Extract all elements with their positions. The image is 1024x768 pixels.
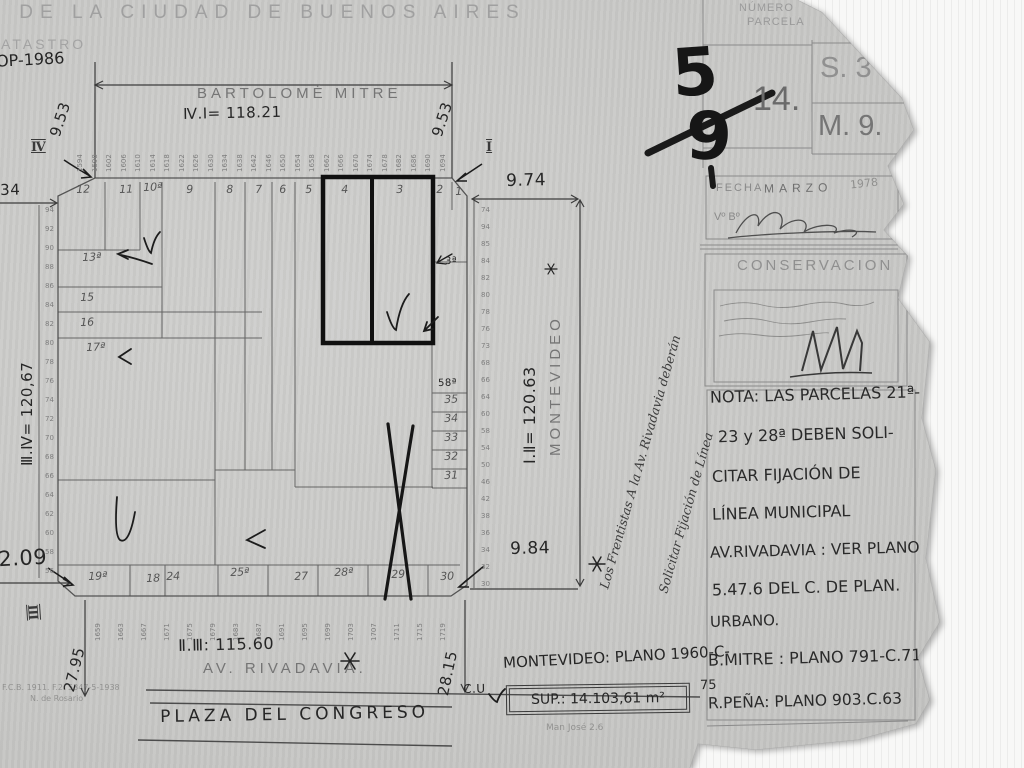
house-number: 38 [481, 512, 490, 520]
house-number: 74 [481, 206, 490, 214]
parcel-number: 27 [294, 571, 308, 583]
parcel-number: 28ª [334, 566, 354, 578]
house-number: 1686 [410, 154, 418, 172]
house-number: 1711 [393, 623, 401, 641]
house-number: 56 [45, 567, 54, 575]
house-number: 1719 [439, 623, 447, 641]
house-number: 50 [481, 461, 490, 469]
parcel-number: 6 [279, 184, 286, 196]
house-number: 1622 [178, 154, 186, 172]
manzana-value: M. 9. [818, 110, 882, 143]
parcel-number: 19ª [88, 570, 108, 582]
house-number: 58 [481, 427, 490, 435]
parcel-number: 30 [440, 571, 454, 583]
house-number: 82 [481, 274, 490, 282]
plan-label: Man José 2.6 [546, 724, 603, 733]
house-number: 1687 [255, 623, 263, 641]
house-number: 1666 [337, 154, 345, 172]
parcel-number: 7 [255, 184, 262, 196]
plan-label: Ⅳ [31, 141, 46, 155]
plan-label: Ⅳ.Ⅰ= 118.21 [183, 105, 282, 123]
house-number: 1703 [347, 623, 355, 641]
paper-shadow: ID DE LA CIUDAD DE BUENOS AIRES CATASTRO… [0, 0, 1024, 768]
parcel-number: 34 [444, 413, 458, 425]
highlighted-parcels-outline [323, 177, 433, 343]
house-number: 94 [45, 206, 54, 214]
house-number: 1630 [207, 154, 215, 172]
house-number: 1626 [192, 154, 200, 172]
parcel-number: 2 [436, 184, 443, 196]
parcel-number: 11 [119, 184, 133, 196]
house-number: 30 [481, 580, 490, 588]
plan-label: C.U [463, 682, 486, 695]
parcel-number: 25ª [230, 566, 250, 578]
parcel-number: 31 [444, 470, 458, 482]
plan-label: 58ª [438, 379, 457, 390]
plan-code: OP-1986 [0, 48, 65, 71]
house-number: 64 [45, 491, 54, 499]
fecha-signature [728, 213, 876, 238]
parcel-number: 5 [305, 184, 312, 196]
dimension-lines [0, 62, 584, 696]
house-number: 84 [45, 301, 54, 309]
house-number: 90 [45, 244, 54, 252]
house-number: 1634 [221, 154, 229, 172]
house-number: 1642 [250, 154, 258, 172]
parcel-number: 33 [444, 432, 458, 444]
block-outline [58, 178, 467, 596]
house-number: 82 [45, 320, 54, 328]
visto-bueno-label: Vº Bº [714, 211, 740, 223]
house-number: 1679 [209, 623, 217, 641]
seccion-value: S. 3 [820, 52, 872, 85]
house-number: 92 [45, 225, 54, 233]
house-number: 80 [481, 291, 490, 299]
fecha-month: MARZO [764, 180, 833, 195]
house-number: 1715 [416, 623, 424, 641]
nota-line: 75 [700, 678, 717, 693]
house-number: 1662 [323, 154, 331, 172]
house-number: 1618 [163, 154, 171, 172]
house-number: 84 [481, 257, 490, 265]
corner-arrows [48, 160, 484, 587]
house-number: 86 [45, 282, 54, 290]
house-number: 60 [481, 410, 490, 418]
house-number: 1667 [140, 623, 148, 641]
parcel-number: 10ª [143, 181, 163, 193]
plan-label: 12.09 [0, 546, 48, 571]
house-number: 42 [481, 495, 490, 503]
house-number: 73 [481, 342, 490, 350]
parcel-number: 13ª [82, 251, 102, 263]
parcel-number: 4 [341, 184, 348, 196]
parcel-number: 32 [444, 451, 458, 463]
parcel-number: 9 [186, 184, 193, 196]
house-number: 1638 [236, 154, 244, 172]
house-number: 1707 [370, 623, 378, 641]
house-number: 70 [45, 434, 54, 442]
house-number: 1654 [294, 154, 302, 172]
house-number: 46 [481, 478, 490, 486]
plan-label: BARTOLOMÉ MITRE [197, 86, 401, 102]
plan-label: AV. RIVADAVIA. [203, 661, 367, 677]
house-number: 72 [45, 415, 54, 423]
house-number: 54 [481, 444, 490, 452]
house-number: 66 [481, 376, 490, 384]
plan-label: N. de Rosario [30, 695, 83, 703]
superficie-box: SUP.: 14.103,61 m² [506, 683, 690, 716]
hoja-denominator: 9 [685, 97, 734, 176]
circunscripcion-value: 14. [753, 80, 800, 119]
parcel-number: 3 [396, 184, 403, 196]
house-number: 1606 [120, 154, 128, 172]
plan-label: Ⅰ.Ⅱ= 120.63 [522, 366, 539, 464]
plan-label: Ⅰ [486, 141, 492, 155]
house-number: 1594 [76, 154, 84, 172]
house-number: 94 [481, 223, 490, 231]
parcel-number: 29 [391, 569, 405, 581]
house-number: 76 [45, 377, 54, 385]
house-number: 62 [45, 510, 54, 518]
parcel-number: 18 [146, 573, 160, 585]
fecha-label: FECHA [716, 182, 763, 194]
house-number: 1670 [352, 154, 360, 172]
parcel-number: 15 [80, 292, 94, 304]
house-number: 1691 [278, 623, 286, 641]
nota-line: URBANO. [710, 611, 780, 631]
house-number: 1598 [91, 154, 99, 172]
house-number: 85 [481, 240, 490, 248]
plan-label: F.C.B. 1911. F.2. 5347-5-1938 [2, 684, 120, 692]
parcel-number: 17ª [86, 341, 106, 353]
house-number: 1646 [265, 154, 273, 172]
plan-label: 9.74 [506, 172, 546, 191]
house-number: 1602 [105, 154, 113, 172]
parcel-number: 16 [80, 317, 94, 329]
house-number: 1659 [94, 623, 102, 641]
conservacion-signature [790, 327, 872, 377]
house-number: 1690 [424, 154, 432, 172]
parcel-number: 35 [444, 394, 458, 406]
house-number: 36 [481, 529, 490, 537]
house-number: 74 [45, 396, 54, 404]
numero-label: NÚMERO [739, 2, 794, 14]
house-number: 66 [45, 472, 54, 480]
plan-label: Ⅲ [24, 604, 39, 621]
header-title: ID DE LA CIUDAD DE BUENOS AIRES [0, 2, 526, 24]
house-number: 80 [45, 339, 54, 347]
house-number: 68 [481, 359, 490, 367]
house-number: 78 [45, 358, 54, 366]
house-number: 1682 [395, 154, 403, 172]
house-number: 88 [45, 263, 54, 271]
plan-label: 9.84 [510, 540, 550, 559]
asterisk-marks [341, 264, 605, 669]
parcel-number: 1 [455, 186, 462, 198]
house-number: 64 [481, 393, 490, 401]
house-number: 1683 [232, 623, 240, 641]
plan-label: 3ª [445, 257, 457, 268]
house-number: 1663 [117, 623, 125, 641]
house-number: 58 [45, 548, 54, 556]
plan-label: 34 [0, 183, 20, 199]
parcel-number: 24 [166, 571, 180, 583]
house-number: 1675 [186, 623, 194, 641]
house-number: 78 [481, 308, 490, 316]
parcel-number: 8 [226, 184, 233, 196]
plan-label: MONTEVIDEO [548, 315, 564, 456]
plan-label: Ⅲ.Ⅳ= 120,67 [20, 362, 36, 466]
house-number: 1650 [279, 154, 287, 172]
house-number: 1674 [366, 154, 374, 172]
house-number: 1694 [439, 154, 447, 172]
paper-sheet: ID DE LA CIUDAD DE BUENOS AIRES CATASTRO… [0, 0, 1024, 768]
house-number: 76 [481, 325, 490, 333]
house-number: 1695 [301, 623, 309, 641]
house-number: 60 [45, 529, 54, 537]
house-number: 34 [481, 546, 490, 554]
parcela-label: PARCELA [747, 16, 805, 28]
house-number: 1671 [163, 623, 171, 641]
superficie-value: SUP.: 14.103,61 m² [509, 686, 687, 712]
house-number: 68 [45, 453, 54, 461]
house-number: 1658 [308, 154, 316, 172]
parcel-number: 12 [76, 184, 90, 196]
house-number: 1678 [381, 154, 389, 172]
scanned-cadastral-plan: ID DE LA CIUDAD DE BUENOS AIRES CATASTRO… [0, 0, 1024, 768]
house-number: 1699 [324, 623, 332, 641]
house-number: 1610 [134, 154, 142, 172]
house-number: 32 [481, 563, 490, 571]
house-number: 1614 [149, 154, 157, 172]
